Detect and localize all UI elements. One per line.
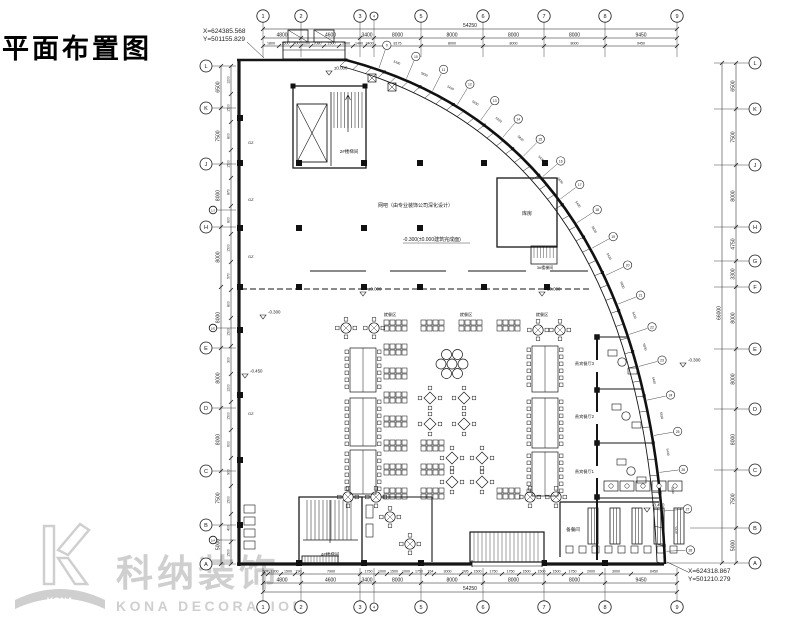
svg-text:5430: 5430 [631, 311, 637, 319]
svg-text:1/A: 1/A [211, 538, 216, 542]
svg-text:800: 800 [227, 217, 231, 223]
svg-text:7500: 7500 [731, 493, 737, 504]
svg-text:8000: 8000 [731, 373, 737, 384]
svg-text:5430: 5430 [606, 252, 613, 260]
svg-text:8000: 8000 [216, 312, 222, 323]
svg-text:4: 4 [373, 606, 375, 610]
svg-text:±0.000: ±0.000 [547, 287, 561, 292]
svg-text:1800: 1800 [267, 42, 275, 46]
svg-text:1500: 1500 [553, 570, 561, 574]
dimension-chain-left: 6500750080008000800080008000750050001200… [216, 64, 234, 566]
svg-text:1750: 1750 [365, 570, 373, 574]
svg-text:5830: 5830 [517, 135, 525, 143]
svg-text:H: H [753, 225, 757, 231]
svg-text:14: 14 [516, 117, 520, 121]
page-title: 平面布置图 [2, 27, 152, 66]
svg-text:6500: 6500 [216, 81, 222, 92]
svg-text:7: 7 [542, 605, 545, 611]
svg-text:1: 1 [261, 605, 264, 611]
svg-text:23: 23 [660, 359, 664, 363]
svg-text:8: 8 [603, 605, 606, 611]
svg-text:贵宾餐厅2: 贵宾餐厅2 [575, 413, 595, 420]
svg-text:790: 790 [296, 570, 302, 574]
svg-text:8000: 8000 [446, 33, 457, 39]
svg-text:J: J [754, 163, 757, 169]
svg-text:1500: 1500 [284, 570, 292, 574]
svg-text:3400: 3400 [361, 578, 372, 584]
dimension-chain-right: 6500750080004750330080008000800075005000… [717, 61, 739, 565]
svg-text:27: 27 [686, 507, 690, 511]
svg-text:1500: 1500 [227, 244, 231, 252]
svg-text:1/J: 1/J [211, 208, 216, 212]
svg-text:9: 9 [675, 14, 678, 20]
svg-text:1750: 1750 [415, 570, 423, 574]
svg-text:4: 4 [373, 15, 375, 19]
svg-text:9450: 9450 [635, 578, 646, 584]
svg-text:2: 2 [299, 605, 302, 611]
svg-text:2#楼梯间: 2#楼梯间 [340, 148, 359, 155]
svg-text:507: 507 [263, 570, 269, 574]
svg-text:1300: 1300 [271, 570, 279, 574]
svg-text:1750: 1750 [490, 570, 498, 574]
svg-text:库房: 库房 [522, 210, 532, 217]
svg-text:8000: 8000 [216, 372, 222, 383]
svg-text:600: 600 [227, 441, 231, 447]
svg-text:8000: 8000 [731, 190, 737, 201]
svg-text:5830: 5830 [471, 99, 479, 106]
svg-text:1500: 1500 [474, 570, 482, 574]
svg-text:16: 16 [559, 159, 563, 163]
survey-bot-x: X=624318.867 [688, 568, 730, 576]
svg-text:8000: 8000 [392, 33, 403, 39]
svg-text:网吧（由专业装饰公司深化设计）: 网吧（由专业装饰公司深化设计） [378, 202, 453, 209]
svg-text:4800: 4800 [276, 33, 287, 39]
svg-text:5830: 5830 [557, 177, 565, 185]
svg-text:5430: 5430 [495, 116, 503, 124]
exterior-walls [237, 59, 666, 567]
svg-text:8000: 8000 [569, 578, 580, 584]
svg-text:1400: 1400 [355, 42, 363, 46]
svg-text:2000: 2000 [587, 570, 595, 574]
svg-text:2: 2 [299, 14, 302, 20]
svg-text:就餐区: 就餐区 [384, 311, 397, 318]
svg-text:3400: 3400 [361, 33, 372, 39]
svg-text:±0.000: ±0.000 [368, 287, 382, 292]
lobby-furniture [366, 505, 421, 555]
svg-text:5830: 5830 [659, 412, 664, 420]
svg-text:1500: 1500 [227, 496, 231, 504]
svg-text:5430: 5430 [651, 377, 657, 385]
svg-text:8000: 8000 [510, 42, 518, 46]
svg-text:7500: 7500 [731, 131, 737, 142]
stair-elevator-core [293, 86, 366, 168]
svg-text:8000: 8000 [731, 434, 737, 445]
svg-text:8000: 8000 [392, 578, 403, 584]
svg-text:1500: 1500 [538, 570, 546, 574]
svg-text:3: 3 [358, 605, 361, 611]
svg-text:L: L [753, 61, 756, 67]
svg-text:1500: 1500 [227, 412, 231, 420]
svg-text:764: 764 [428, 570, 434, 574]
svg-text:66000: 66000 [717, 306, 723, 320]
svg-text:28: 28 [689, 548, 693, 552]
svg-text:±0.000: ±0.000 [334, 66, 348, 71]
survey-point-bottom: X=624318.867 Y=501210.279 [688, 568, 730, 583]
svg-text:15: 15 [538, 138, 542, 142]
svg-text:8000: 8000 [569, 33, 580, 39]
svg-text:19: 19 [611, 235, 615, 239]
svg-text:8000: 8000 [508, 578, 519, 584]
svg-text:8000: 8000 [508, 33, 519, 39]
svg-text:5: 5 [419, 605, 422, 611]
svg-text:5430: 5430 [393, 60, 401, 66]
svg-text:1500: 1500 [227, 328, 231, 336]
svg-text:5430: 5430 [574, 200, 581, 208]
drawing-sheet: KONA 科纳装饰 KONA DECORATION 54250480046003… [0, 0, 800, 629]
svg-text:5830: 5830 [619, 281, 626, 289]
radial-grid-bubbles: 9543010583011543012583013543014583015543… [379, 41, 695, 554]
svg-text:3300: 3300 [731, 268, 737, 279]
svg-text:GZ: GZ [248, 197, 254, 202]
floor-plan-drawing: 5425048004600340080008000800080009450180… [0, 0, 800, 629]
svg-text:贵宾餐厅3: 贵宾餐厅3 [575, 360, 595, 367]
svg-text:5430: 5430 [665, 448, 670, 456]
svg-text:6500: 6500 [731, 80, 737, 91]
svg-text:1200: 1200 [227, 384, 231, 392]
svg-text:就餐区: 就餐区 [536, 311, 549, 318]
svg-text:-0.300: -0.300 [268, 310, 281, 315]
svg-text:-0.300(±0.000建筑完成面): -0.300(±0.000建筑完成面) [403, 236, 461, 243]
svg-text:-0.300: -0.300 [688, 358, 701, 363]
svg-text:5830: 5830 [670, 487, 675, 495]
svg-text:3000: 3000 [444, 570, 452, 574]
svg-text:1/E: 1/E [211, 326, 216, 330]
svg-text:6450: 6450 [650, 570, 658, 574]
svg-text:1000: 1000 [402, 570, 410, 574]
svg-text:4750: 4750 [731, 238, 737, 249]
svg-text:7500: 7500 [216, 130, 222, 141]
svg-text:3: 3 [358, 14, 361, 20]
svg-text:1500: 1500 [523, 570, 531, 574]
svg-text:GZ: GZ [248, 411, 254, 416]
entrance-mats [302, 532, 544, 564]
svg-text:995: 995 [463, 570, 469, 574]
svg-text:3#楼梯间: 3#楼梯间 [537, 264, 553, 270]
svg-text:870: 870 [227, 189, 231, 195]
svg-text:贵宾餐厅1: 贵宾餐厅1 [575, 468, 595, 475]
svg-text:26: 26 [681, 468, 685, 472]
svg-text:8000: 8000 [216, 190, 222, 201]
dining-furniture [336, 318, 571, 508]
svg-text:8000: 8000 [216, 251, 222, 262]
svg-text:E: E [204, 346, 208, 352]
svg-text:4#楼梯间: 4#楼梯间 [321, 551, 340, 558]
survey-point-top: X=624385.568 Y=501155.829 [203, 28, 245, 43]
svg-text:6: 6 [481, 605, 484, 611]
svg-text:8000: 8000 [446, 578, 457, 584]
room-labels: 网吧（由专业装饰公司深化设计）-0.300(±0.000建筑完成面)2#楼梯间3… [248, 140, 595, 558]
svg-text:20: 20 [626, 263, 630, 267]
serving-counters [566, 481, 684, 553]
svg-text:3400: 3400 [366, 42, 374, 46]
svg-text:-0.450: -0.450 [652, 503, 665, 508]
svg-text:18: 18 [595, 208, 599, 212]
svg-text:21: 21 [639, 294, 643, 298]
svg-text:8000: 8000 [216, 434, 222, 445]
svg-text:1500: 1500 [390, 570, 398, 574]
svg-text:800: 800 [227, 301, 231, 307]
svg-text:B: B [753, 526, 757, 532]
svg-text:5430: 5430 [674, 526, 678, 534]
svg-text:1: 1 [261, 14, 264, 20]
svg-text:GZ: GZ [248, 254, 254, 259]
interior-walls [299, 178, 659, 567]
svg-text:H: H [204, 225, 208, 231]
svg-text:22: 22 [650, 325, 654, 329]
svg-text:900: 900 [227, 469, 231, 475]
svg-text:8000: 8000 [731, 312, 737, 323]
svg-text:9: 9 [675, 605, 678, 611]
svg-text:5: 5 [419, 14, 422, 20]
svg-text:5830: 5830 [591, 226, 598, 234]
svg-text:8175: 8175 [394, 42, 402, 46]
svg-text:5830: 5830 [420, 71, 428, 78]
svg-text:7: 7 [542, 14, 545, 20]
svg-text:5430: 5430 [446, 84, 454, 91]
svg-text:4800: 4800 [276, 578, 287, 584]
svg-text:A: A [204, 562, 208, 568]
svg-text:J: J [205, 162, 208, 168]
svg-text:D: D [753, 407, 757, 413]
service-fixtures [244, 505, 255, 549]
svg-text:25: 25 [676, 430, 680, 434]
dimension-chain-top: 5425048004600340080008000800080009450180… [261, 23, 679, 48]
svg-text:就餐区: 就餐区 [460, 311, 473, 318]
svg-text:-0.450: -0.450 [250, 369, 263, 374]
svg-text:12: 12 [468, 83, 472, 87]
svg-text:8: 8 [603, 14, 606, 20]
svg-text:24: 24 [669, 393, 673, 397]
svg-text:G: G [753, 259, 757, 265]
svg-text:6: 6 [481, 14, 484, 20]
svg-text:备餐间: 备餐间 [566, 526, 580, 533]
svg-text:C: C [204, 469, 208, 475]
svg-text:10: 10 [414, 55, 418, 59]
svg-text:1750: 1750 [507, 570, 515, 574]
svg-text:C: C [753, 468, 757, 474]
svg-text:5830: 5830 [642, 343, 648, 351]
svg-text:K: K [753, 107, 757, 113]
grid-bubbles-right: LKJHGFEDCBA [665, 57, 761, 569]
svg-text:B: B [204, 523, 208, 529]
svg-text:1500: 1500 [227, 549, 231, 557]
svg-text:13: 13 [493, 99, 497, 103]
svg-text:GZ: GZ [248, 140, 254, 145]
svg-text:8000: 8000 [571, 42, 579, 46]
svg-text:1000: 1000 [378, 570, 386, 574]
svg-text:17: 17 [578, 183, 582, 187]
svg-text:400: 400 [227, 525, 231, 531]
svg-text:7900: 7900 [327, 570, 335, 574]
svg-text:54250: 54250 [463, 586, 477, 592]
svg-text:300: 300 [227, 357, 231, 363]
svg-text:7500: 7500 [216, 492, 222, 503]
svg-text:4600: 4600 [325, 578, 336, 584]
svg-text:1200: 1200 [227, 76, 231, 84]
svg-text:800: 800 [227, 133, 231, 139]
svg-text:11: 11 [442, 68, 446, 72]
svg-text:3000: 3000 [612, 570, 620, 574]
svg-text:L: L [204, 64, 207, 70]
svg-text:1750: 1750 [569, 570, 577, 574]
svg-text:570: 570 [227, 273, 231, 279]
svg-text:9: 9 [386, 44, 388, 48]
svg-text:8000: 8000 [448, 42, 456, 46]
svg-text:A: A [753, 561, 757, 567]
svg-text:9450: 9450 [637, 42, 645, 46]
svg-text:K: K [204, 106, 208, 112]
svg-text:5000: 5000 [731, 540, 737, 551]
dimension-chain-bottom: 5071300150079079001750100015001000175076… [261, 570, 679, 595]
svg-text:54250: 54250 [463, 23, 477, 29]
svg-text:E: E [753, 347, 757, 353]
survey-bot-y: Y=501210.279 [688, 576, 730, 584]
survey-top-x: X=624385.568 [203, 28, 245, 36]
svg-text:9450: 9450 [635, 33, 646, 39]
svg-text:D: D [204, 406, 208, 412]
survey-top-y: Y=501155.829 [203, 36, 245, 44]
